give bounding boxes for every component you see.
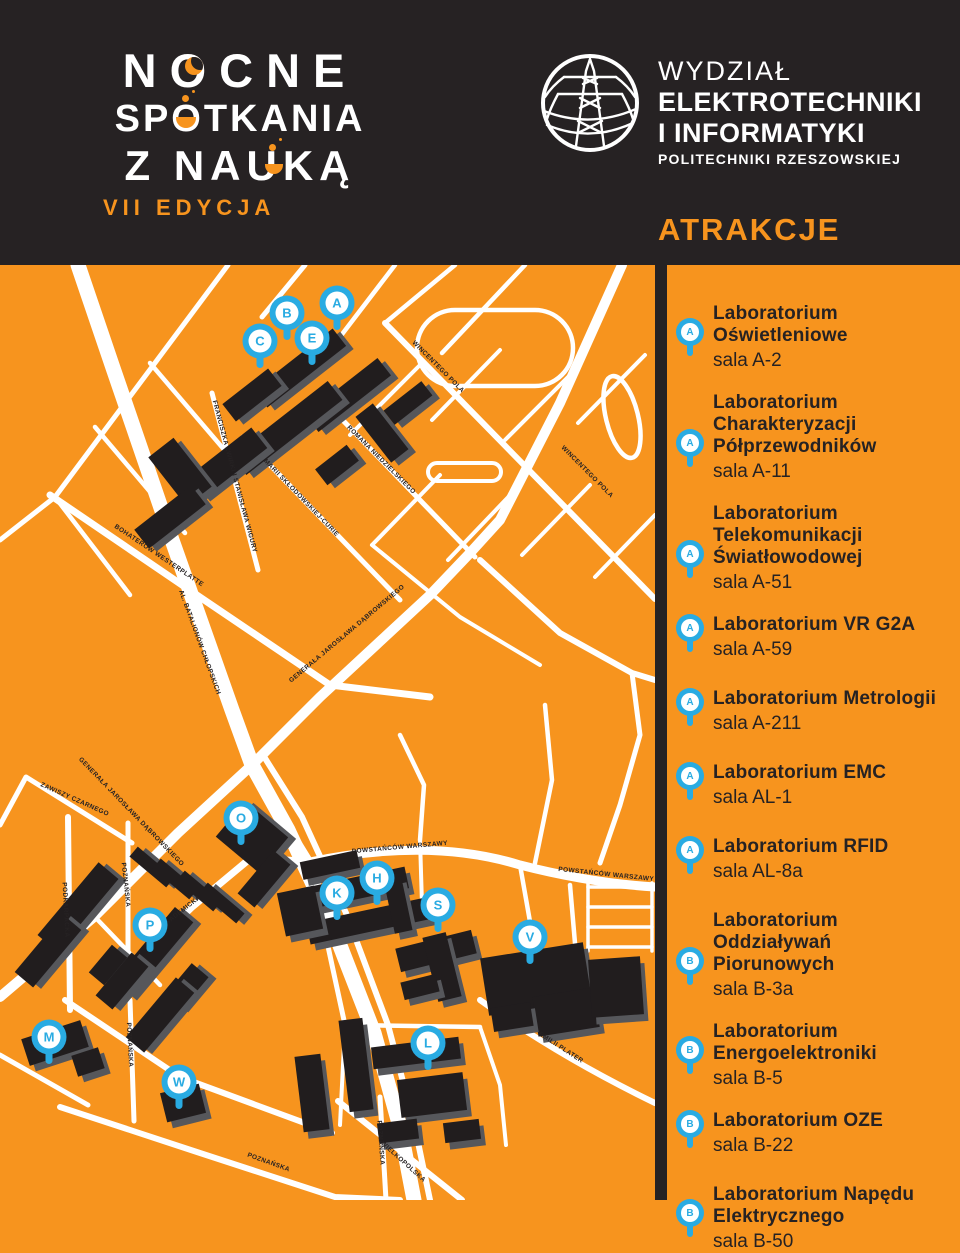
attraction-item: A Laboratorium Charakteryzacji Półprzewo… xyxy=(667,392,960,483)
faculty-pylon-logo xyxy=(537,50,643,156)
pin-letter: B xyxy=(282,306,291,321)
pin-letter: E xyxy=(308,331,317,346)
attraction-room: sala A-2 xyxy=(713,349,941,372)
map-pin-icon: B xyxy=(676,1036,704,1064)
attraction-item: A Laboratorium Oświetleniowesala A-2 xyxy=(667,303,960,372)
attractions-heading: ATRAKCJE xyxy=(658,212,841,248)
street-label: GENERAŁA JAROSŁAWA DĄBROWSKIEGO xyxy=(77,756,185,868)
map-pin-icon: B xyxy=(676,947,704,975)
attraction-title: Laboratorium VR G2A xyxy=(713,614,941,636)
attractions-list: A Laboratorium Oświetleniowesala A-2 A L… xyxy=(667,265,960,1200)
map-sidebar-divider xyxy=(655,265,667,1200)
map-canvas: WINCENTEGO POLAWINCENTEGO POLAROMANA NIE… xyxy=(0,265,655,1200)
attraction-item: A Laboratorium VR G2Asala A-59 xyxy=(667,614,960,668)
header: NOCNE SPOTKANIA Z NAUKĄ VII EDYCJA WYDZI… xyxy=(0,0,960,265)
attraction-title: Laboratorium OZE xyxy=(713,1110,941,1132)
building xyxy=(443,1118,486,1150)
attraction-room: sala AL-1 xyxy=(713,786,941,809)
map-pin-icon: A xyxy=(676,836,704,864)
pin-letter: P xyxy=(146,918,155,933)
pin-letter: B xyxy=(681,1115,699,1133)
pin-letter: A xyxy=(332,296,342,311)
pin-letter: L xyxy=(424,1036,432,1051)
logo-line-3: Z NAUKĄ xyxy=(55,142,425,189)
pin-letter: A xyxy=(681,323,699,341)
event-logo: NOCNE SPOTKANIA Z NAUKĄ VII EDYCJA xyxy=(55,48,425,221)
building xyxy=(588,956,648,1025)
attraction-item: A Laboratorium Telekomunikacji Światłowo… xyxy=(667,503,960,594)
logo-text-nocne: NOCNE xyxy=(123,44,358,97)
attraction-title: Laboratorium Energoelektroniki xyxy=(713,1021,941,1065)
attraction-item: B Laboratorium Energoelektronikisala B-5 xyxy=(667,1021,960,1090)
attraction-room: sala B-50 xyxy=(713,1230,941,1253)
pin-letter: M xyxy=(44,1030,55,1045)
pin-letter: S xyxy=(434,898,443,913)
pin-letter: W xyxy=(173,1075,186,1090)
faculty-line-4: POLITECHNIKI RZESZOWSKIEJ xyxy=(658,149,922,170)
attraction-room: sala A-11 xyxy=(713,460,941,483)
attraction-room: sala A-51 xyxy=(713,571,941,594)
attraction-room: sala A-59 xyxy=(713,638,941,661)
map-pin-C: C xyxy=(243,324,278,369)
attraction-title: Laboratorium RFID xyxy=(713,836,941,858)
attraction-room: sala B-3a xyxy=(713,978,941,1001)
faculty-name: WYDZIAŁ ELEKTROTECHNIKI I INFORMATYKI PO… xyxy=(658,56,922,170)
edition-label: VII EDYCJA xyxy=(55,195,425,221)
map-pin-icon: B xyxy=(676,1110,704,1138)
building xyxy=(315,442,366,490)
attraction-item: A Laboratorium RFIDsala AL-8a xyxy=(667,836,960,890)
campus-map: WINCENTEGO POLAWINCENTEGO POLAROMANA NIE… xyxy=(0,265,655,1200)
street-label: WINCENTEGO POLA xyxy=(560,444,615,499)
attraction-item: B Laboratorium Napędu Elektrycznegosala … xyxy=(667,1184,960,1253)
attraction-item: A Laboratorium EMCsala AL-1 xyxy=(667,762,960,816)
map-pin-icon: A xyxy=(676,762,704,790)
attraction-room: sala B-22 xyxy=(713,1134,941,1157)
pin-letter: K xyxy=(332,886,342,901)
logo-text-z-nauka: Z NAUKĄ xyxy=(125,142,356,189)
pin-letter: A xyxy=(681,434,699,452)
attraction-item: A Laboratorium Metrologiisala A-211 xyxy=(667,688,960,742)
attraction-title: Laboratorium Oddziaływań Piorunowych xyxy=(713,910,941,976)
logo-line-2: SPOTKANIA xyxy=(55,96,425,142)
faculty-line-1: WYDZIAŁ xyxy=(658,56,922,87)
logo-text-spotkania: SPOTKANIA xyxy=(115,98,366,140)
attraction-title: Laboratorium Napędu Elektrycznego xyxy=(713,1184,941,1228)
pin-letter: A xyxy=(681,841,699,859)
attraction-room: sala B-5 xyxy=(713,1067,941,1090)
attraction-title: Laboratorium Metrologii xyxy=(713,688,941,710)
map-pin-icon: A xyxy=(676,540,704,568)
pin-letter: H xyxy=(372,871,381,886)
pin-letter: A xyxy=(681,693,699,711)
pin-letter: A xyxy=(681,545,699,563)
building xyxy=(294,1053,334,1139)
faculty-line-2: ELEKTROTECHNIKI xyxy=(658,87,922,118)
attraction-room: sala AL-8a xyxy=(713,860,941,883)
street-label: ZAWISZY CZARNEGO xyxy=(39,781,110,818)
map-pin-icon: A xyxy=(676,318,704,346)
moon-icon xyxy=(185,57,203,75)
map-pin-icon: A xyxy=(676,614,704,642)
attraction-title: Laboratorium Telekomunikacji Światłowodo… xyxy=(713,503,941,569)
map-pin-icon: A xyxy=(676,429,704,457)
faculty-line-3: I INFORMATYKI xyxy=(658,118,922,149)
attraction-title: Laboratorium EMC xyxy=(713,762,941,784)
attraction-title: Laboratorium Charakteryzacji Półprzewodn… xyxy=(713,392,941,458)
pin-letter: V xyxy=(526,930,535,945)
pin-letter: A xyxy=(681,767,699,785)
pin-letter: B xyxy=(681,1041,699,1059)
pin-letter: B xyxy=(681,1204,699,1222)
pin-letter: O xyxy=(236,811,246,826)
logo-line-1: NOCNE xyxy=(55,48,425,96)
attraction-item: B Laboratorium Oddziaływań Piorunowychsa… xyxy=(667,910,960,1001)
attraction-title: Laboratorium Oświetleniowe xyxy=(713,303,941,347)
attraction-room: sala A-211 xyxy=(713,712,941,735)
map-pin-icon: B xyxy=(676,1199,704,1227)
pin-letter: B xyxy=(681,952,699,970)
pin-letter: A xyxy=(681,619,699,637)
pin-letter: C xyxy=(255,334,265,349)
map-pin-icon: A xyxy=(676,688,704,716)
attraction-item: B Laboratorium OZEsala B-22 xyxy=(667,1110,960,1164)
building xyxy=(397,1072,472,1125)
